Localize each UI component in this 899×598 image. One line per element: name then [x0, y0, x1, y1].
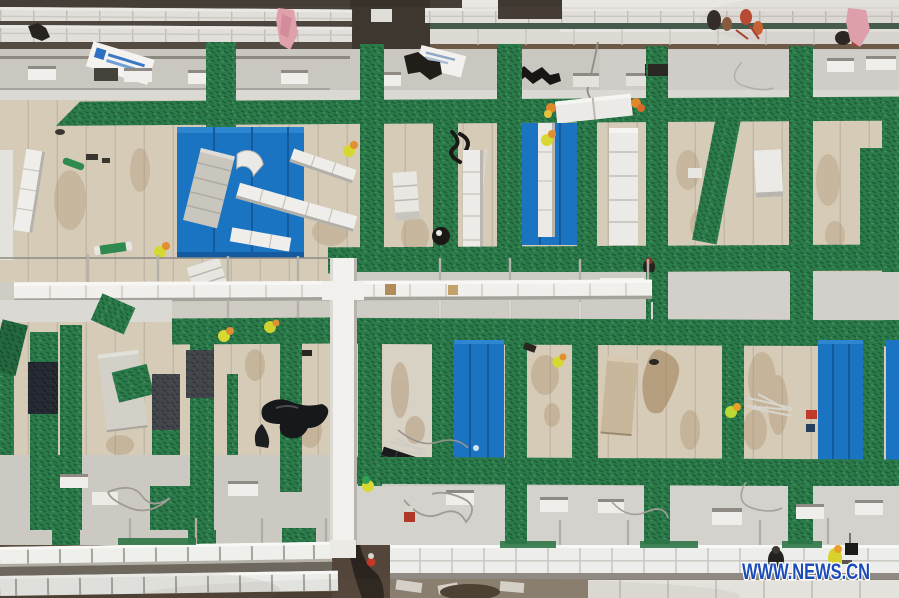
- svg-text:WWW.NEWS.CN: WWW.NEWS.CN: [742, 559, 870, 584]
